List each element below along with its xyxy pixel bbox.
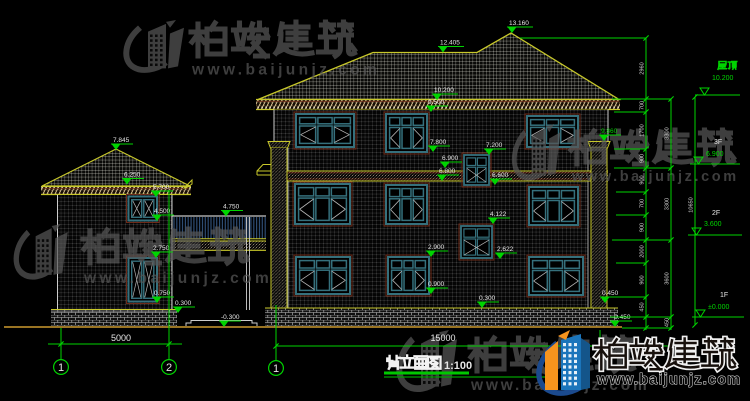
svg-text:1700: 1700 bbox=[640, 124, 646, 136]
svg-text:6.600: 6.600 bbox=[492, 172, 509, 179]
svg-text:1: 1 bbox=[58, 362, 64, 374]
svg-text:13.160: 13.160 bbox=[509, 20, 529, 27]
svg-text:2000: 2000 bbox=[640, 245, 646, 257]
svg-text:2.750: 2.750 bbox=[153, 245, 170, 252]
svg-text:5000: 5000 bbox=[111, 333, 131, 343]
svg-text:3600: 3600 bbox=[665, 272, 671, 284]
svg-text:4.122: 4.122 bbox=[490, 211, 507, 218]
svg-text:0.900: 0.900 bbox=[428, 281, 445, 288]
svg-text:900: 900 bbox=[640, 223, 646, 232]
svg-text:3F: 3F bbox=[714, 139, 722, 146]
svg-text:2960: 2960 bbox=[640, 62, 646, 74]
svg-text:0.750: 0.750 bbox=[154, 290, 171, 297]
svg-text:0.300: 0.300 bbox=[479, 295, 496, 302]
svg-text:900: 900 bbox=[640, 175, 646, 184]
svg-text:www.baijunjz.com: www.baijunjz.com bbox=[191, 62, 380, 79]
svg-text:1:100: 1:100 bbox=[444, 360, 472, 372]
svg-text:7.800: 7.800 bbox=[430, 139, 447, 146]
svg-text:-0.450: -0.450 bbox=[612, 314, 631, 321]
svg-text:3300: 3300 bbox=[665, 198, 671, 210]
svg-text:0.300: 0.300 bbox=[175, 300, 192, 307]
svg-text:10650: 10650 bbox=[689, 197, 695, 213]
svg-text:3.600: 3.600 bbox=[704, 221, 722, 228]
svg-text:6.800: 6.800 bbox=[439, 168, 456, 175]
svg-text:2.900: 2.900 bbox=[428, 244, 445, 251]
svg-text:700: 700 bbox=[640, 101, 646, 110]
svg-text:9.500: 9.500 bbox=[428, 99, 445, 106]
svg-text:2: 2 bbox=[166, 362, 172, 374]
svg-text:450: 450 bbox=[640, 302, 646, 311]
svg-text:www.baijunjz.com: www.baijunjz.com bbox=[596, 372, 741, 388]
svg-text:6.250: 6.250 bbox=[124, 172, 141, 179]
svg-text:-0.300: -0.300 bbox=[221, 314, 240, 321]
svg-text:6.900: 6.900 bbox=[442, 155, 459, 162]
svg-text:9.860: 9.860 bbox=[601, 128, 618, 135]
svg-text:1: 1 bbox=[273, 363, 279, 375]
svg-text:±0.000: ±0.000 bbox=[708, 304, 729, 311]
svg-text:7.200: 7.200 bbox=[486, 142, 503, 149]
svg-text:2.622: 2.622 bbox=[497, 246, 514, 253]
svg-text:15000: 15000 bbox=[430, 333, 455, 343]
svg-text:12.405: 12.405 bbox=[440, 40, 460, 47]
svg-text:900: 900 bbox=[640, 154, 646, 163]
svg-text:2F: 2F bbox=[712, 210, 720, 217]
svg-text:10.200: 10.200 bbox=[712, 75, 734, 82]
svg-text:900: 900 bbox=[640, 275, 646, 284]
svg-text:www.baijunjz.com: www.baijunjz.com bbox=[83, 270, 272, 287]
svg-text:4.500: 4.500 bbox=[154, 208, 171, 215]
svg-text:5.700: 5.700 bbox=[153, 184, 170, 191]
svg-text:700: 700 bbox=[640, 199, 646, 208]
svg-text:www.baijunjz.com: www.baijunjz.com bbox=[571, 169, 739, 185]
svg-text:4.750: 4.750 bbox=[223, 204, 240, 211]
svg-text:10.200: 10.200 bbox=[434, 87, 454, 94]
svg-text:450: 450 bbox=[665, 318, 671, 327]
svg-text:6.900: 6.900 bbox=[706, 151, 724, 158]
svg-text:3300: 3300 bbox=[665, 127, 671, 139]
svg-text:0.450: 0.450 bbox=[602, 290, 619, 297]
svg-text:7.845: 7.845 bbox=[113, 137, 130, 144]
svg-text:1F: 1F bbox=[720, 292, 728, 299]
